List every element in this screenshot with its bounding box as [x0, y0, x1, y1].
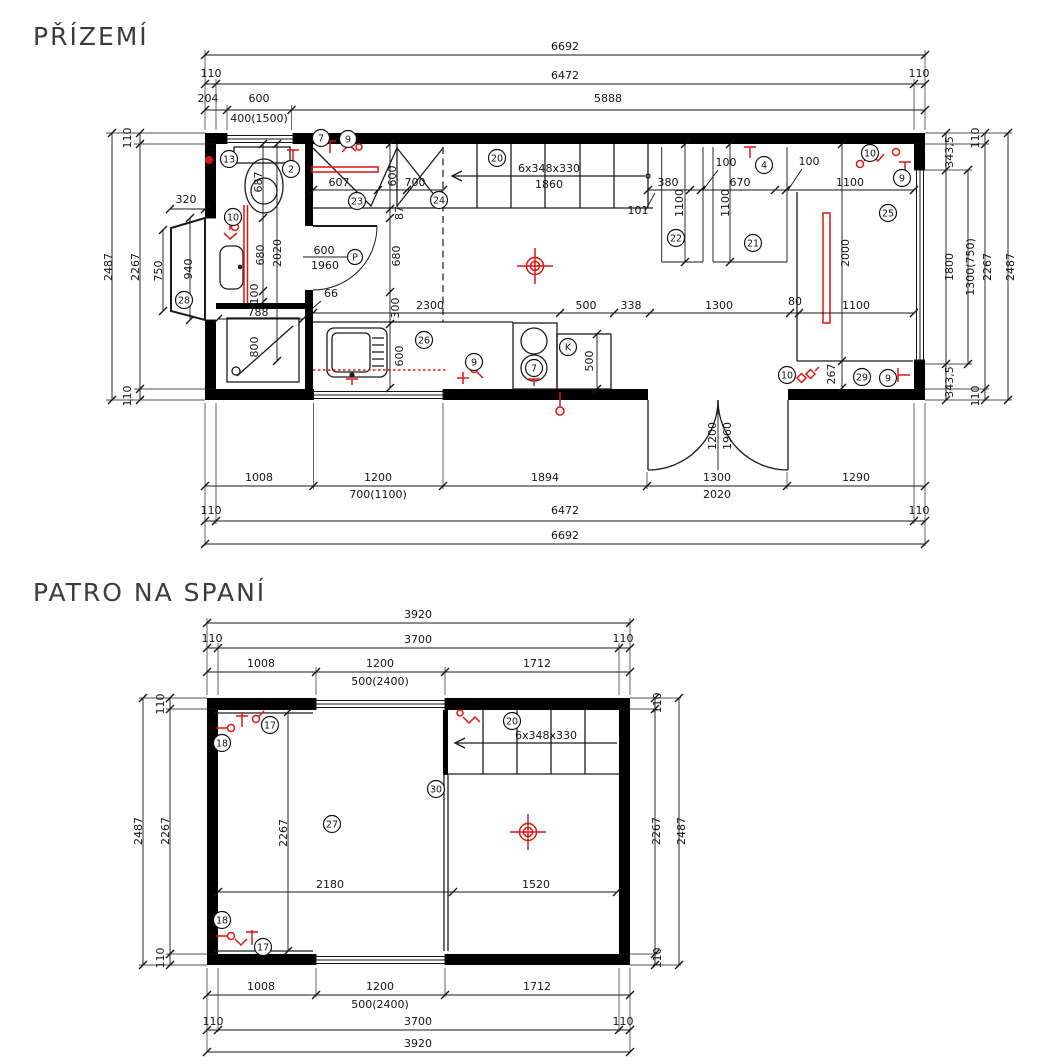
window-bottom-kitchen: [313, 389, 443, 400]
dim: 100: [248, 284, 261, 305]
dim: 3700: [404, 1015, 432, 1028]
plan-prizemi: PŘÍZEMÍ: [33, 22, 1017, 548]
dim: 500: [583, 351, 596, 372]
door-width: 600: [314, 244, 335, 257]
dim: 110: [909, 504, 930, 517]
callout-9c: 9: [885, 374, 891, 385]
dim: 607: [329, 176, 350, 189]
dim: 1200: [364, 471, 392, 484]
dim: 600: [393, 346, 406, 367]
callout-17a: 17: [264, 721, 276, 732]
callout-9a: 9: [899, 174, 905, 185]
dim: 2267: [650, 817, 663, 845]
dim: 750: [152, 261, 165, 282]
dim: 338: [621, 299, 642, 312]
dim: 110: [651, 948, 664, 969]
dim: 3700: [404, 633, 432, 646]
callout-27: 27: [326, 820, 338, 831]
dim: 6472: [551, 504, 579, 517]
window-spec: 500(2400): [351, 675, 409, 688]
radiator: [823, 213, 830, 323]
window-spec: 1300(750): [964, 238, 977, 296]
dim: 80: [788, 295, 802, 308]
callout-18b: 18: [216, 916, 228, 927]
bath-partition-upper: [305, 144, 313, 226]
red-shelf: [312, 167, 378, 172]
dim: 1100: [836, 176, 864, 189]
dim: 2180: [316, 878, 344, 891]
dim-total-bottom: 6692: [551, 529, 579, 542]
callout-17b: 17: [257, 943, 269, 954]
dim: 940: [182, 259, 195, 280]
door-width: 1200: [706, 422, 719, 450]
callout-26: 26: [418, 336, 430, 347]
dim-total-top: 6692: [551, 40, 579, 53]
dim: 380: [658, 176, 679, 189]
bottom-left-symbols: [216, 930, 258, 945]
plan2-title: PATRO NA SPANÍ: [33, 578, 266, 607]
dim: 1712: [523, 980, 551, 993]
stair-run: 1860: [535, 178, 563, 191]
callout-K: K: [565, 343, 572, 354]
plan2-dim-lines: [139, 618, 683, 1056]
dim: 1100: [719, 189, 732, 217]
dim: 1520: [522, 878, 550, 891]
plan2-callouts: 17 18 20 30 27 18 17: [214, 713, 521, 956]
window-spec: 500(2400): [351, 998, 409, 1011]
dim: 1008: [247, 657, 275, 670]
dim: 110: [202, 632, 223, 645]
callout-23: 23: [351, 197, 363, 208]
dim: 100: [799, 155, 820, 168]
ceiling-light-symbol: [510, 814, 546, 850]
wall-lamp-dot: [205, 156, 213, 164]
dim: 66: [324, 287, 338, 300]
dim: 800: [248, 337, 261, 358]
callout-21: 21: [747, 239, 759, 250]
dim: 110: [121, 128, 134, 149]
stairs-plan2: [448, 710, 619, 774]
dim: 1200: [366, 980, 394, 993]
dim: 680: [390, 246, 403, 267]
top-left-symbols: [216, 711, 264, 732]
dim: 320: [176, 193, 197, 206]
callout-10a: 10: [864, 149, 876, 160]
dim: 110: [121, 386, 134, 407]
dim: 101: [628, 204, 649, 217]
dim: 1712: [523, 657, 551, 670]
dim: 2487: [132, 817, 145, 845]
callout-20: 20: [491, 154, 503, 165]
stair-symbol: [457, 710, 480, 723]
dim: 110: [203, 1015, 224, 1028]
plan2-fixtures: [448, 710, 619, 774]
callout-2: 2: [288, 165, 294, 176]
dim: 6472: [551, 69, 579, 82]
dim: 1800: [943, 253, 956, 281]
dim: 204: [198, 92, 219, 105]
dim-total-top: 3920: [404, 608, 432, 621]
dim: 110: [613, 1015, 634, 1028]
dim: 1300: [703, 471, 731, 484]
dim: 2487: [1004, 253, 1017, 281]
window-spec: 700(1100): [349, 488, 407, 501]
dim: 2300: [416, 299, 444, 312]
dim: 1100: [673, 189, 686, 217]
dim: 1894: [531, 471, 559, 484]
dim: 110: [969, 128, 982, 149]
door-height: 1960: [311, 259, 339, 272]
dim: 2487: [102, 253, 115, 281]
dim: 1300: [705, 299, 733, 312]
callout-18a: 18: [216, 739, 228, 750]
callout-20: 20: [506, 717, 518, 728]
dim: 110: [651, 693, 664, 714]
tap-symbol-4: [744, 147, 756, 158]
callout-9: 9: [345, 135, 351, 146]
callout-25: 25: [882, 209, 894, 220]
washbasin: [220, 246, 243, 289]
plan1-dim-texts: 6692 110 6472 110 204 600 5888 400(1500)…: [102, 40, 1017, 542]
extension-lines: [139, 618, 681, 1053]
dim: 2000: [839, 239, 852, 267]
dim: 1200: [366, 657, 394, 670]
dim: 2267: [981, 253, 994, 281]
stair-spec: 6x348x330: [518, 162, 580, 175]
dim: 110: [154, 948, 167, 969]
callout-9b: 9: [471, 358, 477, 369]
window-top: [316, 698, 445, 710]
dim: 600: [386, 166, 399, 187]
stair-spec: 6x348x330: [515, 729, 577, 742]
dim-total-bottom: 3920: [404, 1037, 432, 1050]
dim: 1100: [842, 299, 870, 312]
shower: [227, 318, 299, 382]
plan-patro: PATRO NA SPANÍ: [33, 578, 688, 1056]
dim: 788: [248, 306, 269, 319]
dim: 2267: [277, 819, 290, 847]
floorplan-svg: PŘÍZEMÍ: [0, 0, 1050, 1064]
callout-P: P: [352, 253, 358, 264]
door-spec: 2020: [703, 488, 731, 501]
dim: 2267: [159, 817, 172, 845]
dim: 1008: [247, 980, 275, 993]
dim: 500: [576, 299, 597, 312]
interior-door-P: [313, 226, 377, 290]
dim-rows: [139, 619, 683, 1056]
dim: 343,5: [943, 366, 956, 398]
dim: 687: [252, 172, 265, 193]
dim: 300: [389, 298, 402, 319]
dim: 680: [254, 245, 267, 266]
dim: 87: [393, 206, 406, 220]
dim: 1008: [245, 471, 273, 484]
dim: 2487: [675, 817, 688, 845]
bath-partition-lower: [305, 290, 313, 389]
dim: 110: [613, 632, 634, 645]
window-right: [914, 170, 925, 360]
dim: 343,5: [943, 136, 956, 168]
callout-4: 4: [761, 161, 767, 172]
dim: 110: [201, 504, 222, 517]
dim: 600: [249, 92, 270, 105]
window-spec: 400(1500): [230, 112, 288, 125]
dim: 100: [716, 156, 737, 169]
door-height: 1960: [721, 422, 734, 450]
callout-29: 29: [856, 373, 868, 384]
stair-wall: [443, 710, 448, 775]
dim: 267: [825, 364, 838, 385]
dim: 5888: [594, 92, 622, 105]
callout-30: 30: [430, 785, 442, 796]
sink-tap: [346, 379, 358, 385]
callout-28: 28: [178, 296, 190, 307]
callout-7: 7: [318, 134, 324, 145]
dim: 2267: [129, 253, 142, 281]
dim: 1290: [842, 471, 870, 484]
dim: 670: [730, 176, 751, 189]
callout-10b: 10: [227, 213, 239, 224]
dim: 110: [154, 694, 167, 715]
callout-22: 22: [670, 234, 682, 245]
ceiling-light-symbol: [517, 248, 553, 284]
callout-7b: 7: [531, 364, 537, 375]
dim: 110: [969, 386, 982, 407]
drawing-sheet: PŘÍZEMÍ: [0, 0, 1050, 1064]
plan1-title: PŘÍZEMÍ: [33, 22, 149, 51]
window-bottom: [316, 954, 445, 965]
callout-13: 13: [223, 155, 235, 166]
callout-10c: 10: [781, 371, 793, 382]
dim: 2020: [271, 239, 284, 267]
dim: 110: [909, 67, 930, 80]
window-top-bath: [227, 133, 293, 144]
callout-24: 24: [433, 196, 445, 207]
bath-heater: [244, 205, 248, 303]
dim: 110: [201, 67, 222, 80]
dim: 700: [405, 176, 426, 189]
plan2-electrical: [216, 710, 546, 945]
